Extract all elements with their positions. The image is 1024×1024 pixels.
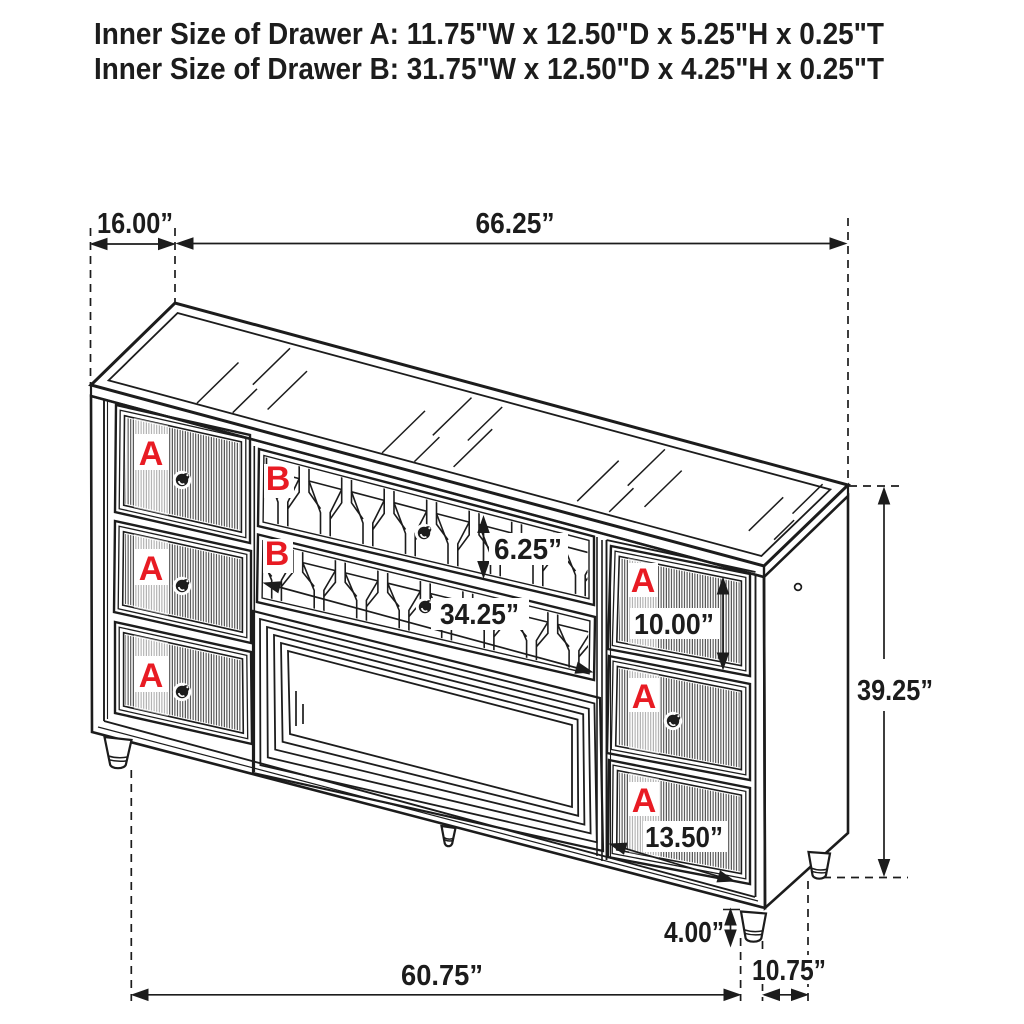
svg-text:39.25”: 39.25”	[857, 675, 933, 707]
svg-text:B: B	[266, 460, 291, 498]
svg-text:66.25”: 66.25”	[476, 208, 555, 240]
svg-text:A: A	[139, 435, 164, 473]
svg-text:B: B	[265, 535, 290, 573]
svg-text:16.00”: 16.00”	[97, 208, 173, 240]
svg-text:60.75”: 60.75”	[401, 960, 483, 992]
svg-text:Inner Size of Drawer A: 11.75": Inner Size of Drawer A: 11.75"W x 12.50"…	[94, 16, 884, 51]
svg-text:A: A	[631, 562, 656, 600]
svg-text:A: A	[139, 550, 164, 588]
svg-text:A: A	[632, 678, 657, 716]
svg-text:4.00”: 4.00”	[664, 917, 724, 949]
svg-text:34.25”: 34.25”	[440, 599, 519, 631]
svg-text:10.75”: 10.75”	[752, 955, 826, 987]
svg-text:10.00”: 10.00”	[634, 609, 714, 641]
svg-text:Inner Size of Drawer B: 31.75": Inner Size of Drawer B: 31.75"W x 12.50"…	[94, 51, 884, 86]
svg-text:6.25”: 6.25”	[494, 534, 562, 566]
svg-text:13.50”: 13.50”	[645, 822, 723, 854]
svg-text:A: A	[632, 782, 657, 820]
svg-text:A: A	[139, 657, 164, 695]
